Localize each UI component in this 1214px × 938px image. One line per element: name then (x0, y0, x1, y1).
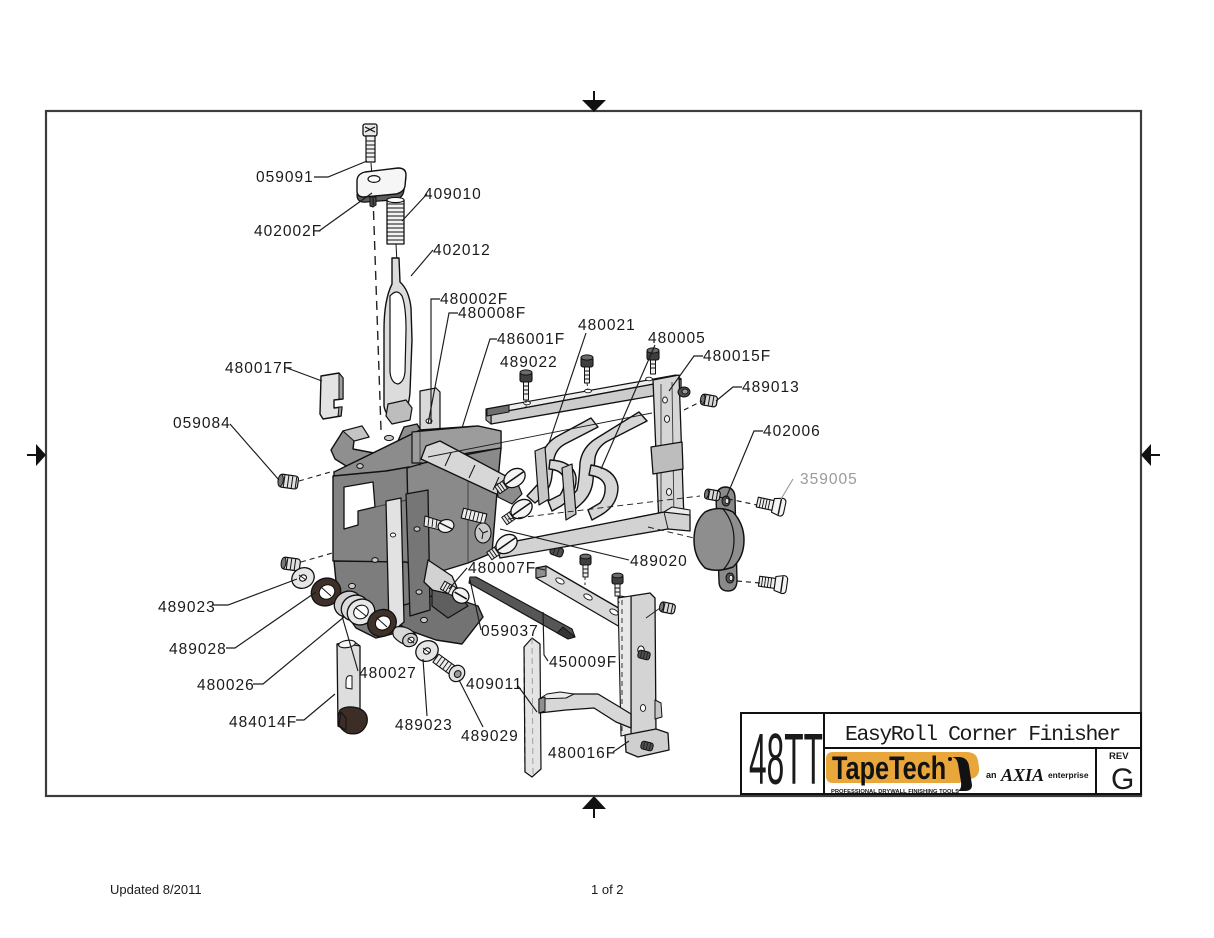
svg-text:486001F: 486001F (497, 331, 565, 348)
svg-text:480005: 480005 (648, 330, 706, 347)
svg-text:059091: 059091 (256, 169, 314, 186)
svg-text:480026: 480026 (197, 677, 255, 694)
svg-text:480016F: 480016F (548, 745, 616, 762)
svg-text:PROFESSIONAL DRYWALL FINISHING: PROFESSIONAL DRYWALL FINISHING TOOLS (831, 789, 959, 795)
svg-text:enterprise: enterprise (1048, 770, 1089, 780)
svg-text:489020: 489020 (630, 553, 688, 570)
svg-text:489023: 489023 (158, 599, 216, 616)
svg-text:REV: REV (1109, 751, 1129, 762)
svg-text:489022: 489022 (500, 354, 558, 371)
svg-text:489029: 489029 (461, 728, 519, 745)
svg-text:Updated 8/2011: Updated 8/2011 (110, 882, 202, 897)
svg-text:489023: 489023 (395, 717, 453, 734)
svg-text:409010: 409010 (424, 186, 482, 203)
svg-text:409011: 409011 (466, 676, 523, 693)
svg-text:480017F: 480017F (225, 360, 293, 377)
svg-text:480008F: 480008F (458, 305, 526, 322)
svg-text:EasyRoll Corner Finisher: EasyRoll Corner Finisher (845, 723, 1120, 747)
svg-text:1 of 2: 1 of 2 (591, 882, 624, 897)
svg-text:402002F: 402002F (254, 223, 322, 240)
svg-text:359005: 359005 (800, 471, 858, 488)
svg-text:489013: 489013 (742, 379, 800, 396)
svg-text:G: G (1111, 763, 1134, 796)
svg-text:48TT: 48TT (749, 719, 823, 799)
svg-text:480015F: 480015F (703, 348, 771, 365)
svg-text:402012: 402012 (433, 242, 491, 259)
svg-text:489028: 489028 (169, 641, 227, 658)
svg-text:480027: 480027 (359, 665, 417, 682)
svg-text:480007F: 480007F (468, 560, 536, 577)
svg-text:AXIA: AXIA (1000, 765, 1044, 785)
svg-text:450009F: 450009F (549, 654, 617, 671)
svg-text:484014F: 484014F (229, 714, 297, 731)
svg-text:402006: 402006 (763, 423, 821, 440)
svg-text:059037: 059037 (481, 623, 539, 640)
svg-text:480021: 480021 (578, 317, 636, 334)
svg-text:TapeTech: TapeTech (832, 751, 946, 787)
svg-text:an: an (986, 770, 997, 780)
svg-text:059084: 059084 (173, 415, 231, 432)
